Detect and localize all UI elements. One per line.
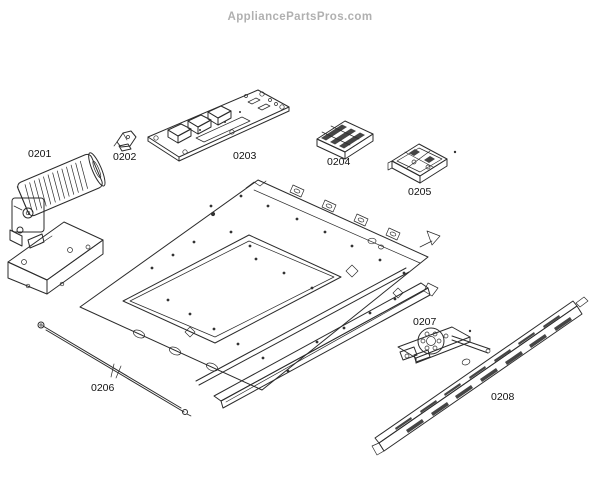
part-0205-relay-module: 0205 (388, 144, 447, 198)
diagram-page: AppliancePartsPros.com (0, 0, 600, 501)
blower-mounting-bracket (8, 222, 103, 294)
part-0206-probe-rod: 0206 (38, 322, 191, 416)
part-label-0203: 0203 (233, 150, 257, 162)
watermark-text: AppliancePartsPros.com (228, 11, 373, 23)
panel-front-trim-rails (196, 231, 440, 408)
part-label-0205: 0205 (408, 186, 432, 198)
part-0204-terminal-block: 0204 (317, 121, 373, 168)
part-label-0208: 0208 (491, 391, 515, 403)
part-label-0204: 0204 (327, 156, 351, 168)
panel-edge-tabs (290, 185, 400, 240)
part-0208-vent-grille-strip: 0208 (372, 297, 588, 455)
part-label-0201: 0201 (28, 148, 52, 160)
part-0201-blower-assembly: 0201 (8, 148, 108, 294)
part-label-0207: 0207 (413, 316, 437, 328)
blower-cylinder (16, 151, 108, 217)
part-0203-control-board: 0203 (148, 90, 289, 162)
part-0202-clip: 0202 (113, 131, 137, 163)
part-label-0206: 0206 (91, 382, 115, 394)
diagram-canvas: AppliancePartsPros.com (0, 0, 600, 501)
part-label-0202: 0202 (113, 151, 137, 163)
part-0207-door-lock-assembly: 0207 (398, 316, 490, 366)
